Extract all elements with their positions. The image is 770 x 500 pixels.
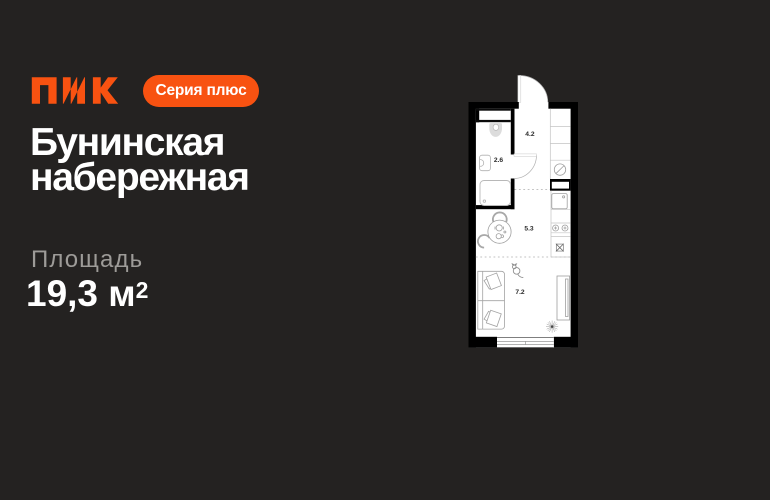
svg-text:5.3: 5.3 xyxy=(524,226,534,233)
svg-text:2.6: 2.6 xyxy=(494,157,504,164)
svg-text:4.2: 4.2 xyxy=(525,131,535,138)
svg-text:7.2: 7.2 xyxy=(515,289,525,296)
